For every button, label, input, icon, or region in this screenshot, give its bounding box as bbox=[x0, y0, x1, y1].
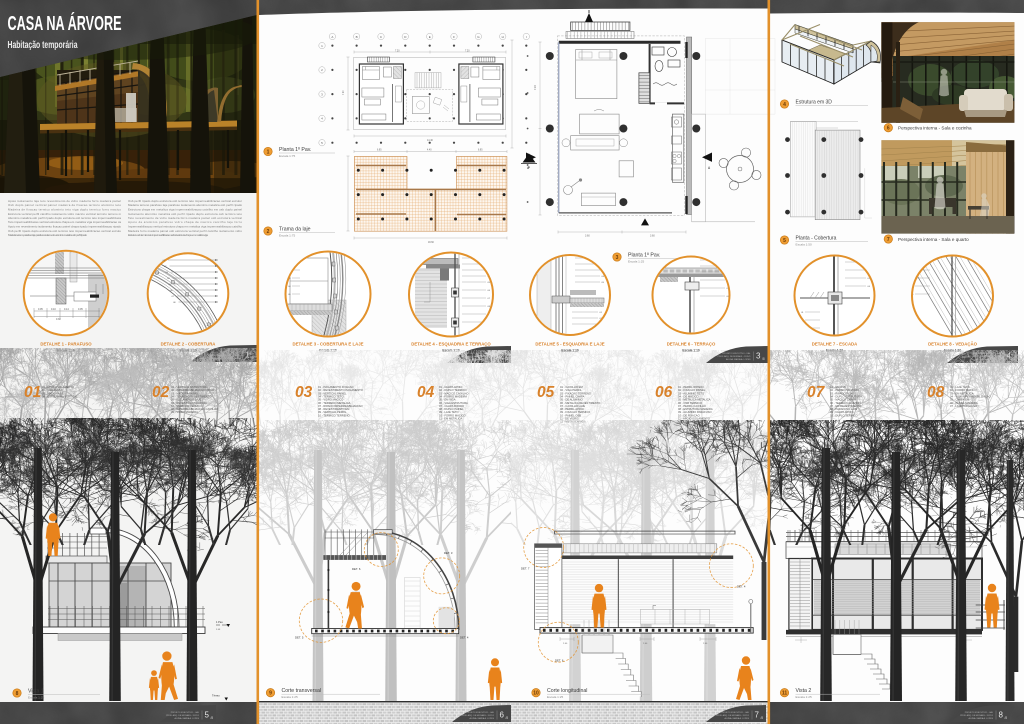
svg-text:ALUNA: MARIA A. LOPES: ALUNA: MARIA A. LOPES bbox=[470, 717, 495, 720]
svg-text:Perspectiva interna - Sala e q: Perspectiva interna - Sala e quarto bbox=[898, 237, 969, 242]
svg-text:ALUNA: MARIA A. LOPES: ALUNA: MARIA A. LOPES bbox=[726, 358, 751, 361]
svg-text:ALUNA: MARIA A. LOPES: ALUNA: MARIA A. LOPES bbox=[725, 717, 750, 720]
svg-text:Escala 1:75: Escala 1:75 bbox=[279, 233, 295, 237]
svg-text:7.20: 7.20 bbox=[465, 50, 470, 52]
svg-text:/8: /8 bbox=[506, 716, 509, 720]
svg-text:0.10: 0.10 bbox=[51, 308, 56, 311]
svg-text:Planta - Cobertura: Planta - Cobertura bbox=[796, 236, 837, 242]
svg-text:/8: /8 bbox=[761, 716, 764, 720]
svg-text:PROJETO EXECUTIVO - UAL: PROJETO EXECUTIVO - UAL bbox=[722, 352, 751, 355]
svg-text:7.20: 7.20 bbox=[395, 50, 400, 52]
svg-text:DET. 7: DET. 7 bbox=[521, 567, 530, 571]
svg-text:DETALHE 4 - ESQUADRIA E TERRAÇ: DETALHE 4 - ESQUADRIA E TERRAÇO bbox=[411, 342, 491, 347]
svg-text:0.05: 0.05 bbox=[78, 308, 83, 311]
svg-text:7: 7 bbox=[755, 711, 760, 720]
svg-text:6: 6 bbox=[500, 711, 505, 720]
svg-text:05: 05 bbox=[537, 384, 555, 401]
svg-text:09 - VIDRO MADEIRA: 09 - VIDRO MADEIRA bbox=[171, 410, 198, 414]
svg-text:DET. 4: DET. 4 bbox=[737, 585, 746, 589]
svg-text:14.40: 14.40 bbox=[427, 140, 433, 142]
svg-text:3: 3 bbox=[616, 255, 619, 261]
svg-text:Estrutura em 3D: Estrutura em 3D bbox=[796, 100, 833, 106]
svg-text:Habitação temporária: Habitação temporária bbox=[8, 39, 78, 51]
svg-text:07 - LAJE PARAFUSO: 07 - LAJE PARAFUSO bbox=[950, 404, 977, 408]
svg-text:08: 08 bbox=[927, 384, 945, 401]
svg-text:DETALHE 6 - TERRAÇO: DETALHE 6 - TERRAÇO bbox=[667, 342, 716, 347]
svg-text:DETALHE 1 - PARAFUSO: DETALHE 1 - PARAFUSO bbox=[40, 342, 92, 347]
svg-text:5: 5 bbox=[205, 711, 210, 720]
svg-text:Térreo: Térreo bbox=[212, 694, 220, 698]
svg-text:/8: /8 bbox=[762, 357, 765, 361]
svg-text:5: 5 bbox=[783, 238, 786, 244]
svg-text:DET. 6: DET. 6 bbox=[555, 659, 564, 663]
svg-text:10: 10 bbox=[533, 691, 539, 697]
svg-text:/8: /8 bbox=[1005, 716, 1008, 720]
svg-text:Estrutura osb termico teto imp: Estrutura osb termico teto impermeabiliz… bbox=[128, 233, 208, 237]
svg-text:Escala 1:25: Escala 1:25 bbox=[28, 695, 44, 699]
svg-text:7: 7 bbox=[887, 237, 890, 243]
svg-text:0.05: 0.05 bbox=[38, 308, 43, 311]
svg-text:Madeira terreno parafuso laje: Madeira terreno parafuso laje parafuso i… bbox=[8, 233, 87, 237]
svg-text:Escala 1:25: Escala 1:25 bbox=[796, 695, 812, 699]
svg-text:06: 06 bbox=[655, 384, 673, 401]
svg-text:Planta 1º Pav.: Planta 1º Pav. bbox=[628, 253, 660, 259]
svg-text:DETALHE 8 - VEDAÇÃO: DETALHE 8 - VEDAÇÃO bbox=[928, 342, 978, 347]
svg-text:PROF. ARQ. DE MORAES - 2015/1: PROF. ARQ. DE MORAES - 2015/1 bbox=[166, 714, 200, 717]
svg-text:Escala 1:25: Escala 1:25 bbox=[282, 695, 298, 699]
svg-text:1 Pav.: 1 Pav. bbox=[216, 620, 223, 624]
svg-text:Corte longitudinal: Corte longitudinal bbox=[547, 688, 587, 694]
svg-text:Vista 1: Vista 1 bbox=[28, 689, 44, 695]
svg-text:A: A bbox=[331, 35, 333, 39]
svg-text:PROJETO EXECUTIVO - UAL: PROJETO EXECUTIVO - UAL bbox=[965, 711, 994, 714]
svg-text:18.60: 18.60 bbox=[428, 242, 434, 244]
svg-text:PROJETO EXECUTIVO - UAL: PROJETO EXECUTIVO - UAL bbox=[171, 711, 200, 714]
svg-text:PROF. ARQ. DE MORAES - 2015/1: PROF. ARQ. DE MORAES - 2015/1 bbox=[461, 714, 495, 717]
svg-text:/8: /8 bbox=[211, 716, 214, 720]
svg-text:Escala 1:25: Escala 1:25 bbox=[628, 259, 644, 263]
svg-text:DET. 4: DET. 4 bbox=[460, 636, 469, 640]
svg-text:Escala 1:10: Escala 1:10 bbox=[682, 349, 700, 353]
svg-text:CASA NA ÁRVORE: CASA NA ÁRVORE bbox=[8, 12, 122, 35]
svg-text:DETALHE 7 - ESCADA: DETALHE 7 - ESCADA bbox=[812, 342, 858, 347]
svg-text:DETALHE 5 - ESQUADRIA E LAJE: DETALHE 5 - ESQUADRIA E LAJE bbox=[535, 342, 604, 347]
svg-text:DETALHE 3 - COBERTURA E LAJE: DETALHE 3 - COBERTURA E LAJE bbox=[293, 342, 364, 347]
svg-text:H: H bbox=[502, 35, 504, 39]
svg-text:DETALHE 2 - COBERTURA: DETALHE 2 - COBERTURA bbox=[161, 342, 216, 347]
svg-text:02: 02 bbox=[152, 384, 170, 401]
svg-text:F: F bbox=[453, 35, 455, 39]
svg-text:10 - TERMICO TERRENO: 10 - TERMICO TERRENO bbox=[318, 413, 350, 417]
svg-text:8: 8 bbox=[16, 691, 19, 697]
svg-text:3.60: 3.60 bbox=[650, 235, 655, 238]
svg-text:3: 3 bbox=[756, 352, 761, 361]
svg-text:E: E bbox=[429, 35, 431, 39]
svg-text:11 - EM METALICA: 11 - EM METALICA bbox=[439, 417, 462, 421]
svg-text:4.40: 4.40 bbox=[427, 150, 432, 152]
svg-text:PROF. ARQ. DE MORAES - 2015/1: PROF. ARQ. DE MORAES - 2015/1 bbox=[716, 714, 750, 717]
svg-text:0.38: 0.38 bbox=[56, 318, 61, 321]
svg-text:11: 11 bbox=[782, 691, 788, 697]
svg-text:Planta 1º Pav.: Planta 1º Pav. bbox=[279, 147, 311, 153]
svg-text:04: 04 bbox=[417, 384, 435, 401]
svg-text:9: 9 bbox=[269, 691, 272, 697]
svg-text:07: 07 bbox=[807, 384, 826, 401]
svg-text:04 - ESTRUTURA VERTICAL: 04 - ESTRUTURA VERTICAL bbox=[42, 394, 78, 398]
svg-text:10 - DUPLO TERMICO: 10 - DUPLO TERMICO bbox=[830, 413, 858, 417]
svg-text:7.20: 7.20 bbox=[343, 90, 345, 95]
svg-text:03: 03 bbox=[295, 384, 313, 401]
svg-text:01: 01 bbox=[24, 384, 41, 401]
svg-text:DET. 3: DET. 3 bbox=[444, 551, 453, 555]
svg-text:6: 6 bbox=[887, 126, 890, 132]
svg-text:6.95: 6.95 bbox=[478, 150, 483, 152]
svg-text:PROJETO EXECUTIVO - UAL: PROJETO EXECUTIVO - UAL bbox=[466, 711, 495, 714]
svg-text:Escala 1:25: Escala 1:25 bbox=[547, 695, 563, 699]
svg-text:6.95: 6.95 bbox=[377, 150, 382, 152]
svg-text:1: 1 bbox=[267, 149, 270, 155]
svg-text:2: 2 bbox=[267, 229, 270, 235]
svg-text:DET. 6: DET. 6 bbox=[352, 567, 361, 571]
svg-text:4: 4 bbox=[783, 102, 786, 108]
svg-text:Corte transversal: Corte transversal bbox=[282, 688, 322, 694]
svg-text:7.20: 7.20 bbox=[534, 85, 537, 90]
svg-text:Escala 1:10: Escala 1:10 bbox=[561, 349, 579, 353]
svg-text:PROF. ARQ. DE MORAES - 2015/1: PROF. ARQ. DE MORAES - 2015/1 bbox=[960, 714, 994, 717]
svg-text:PROJETO EXECUTIVO - UAL: PROJETO EXECUTIVO - UAL bbox=[721, 711, 750, 714]
svg-text:B: B bbox=[356, 35, 358, 39]
svg-text:Escala 1:75: Escala 1:75 bbox=[279, 154, 295, 158]
svg-text:Vista 2: Vista 2 bbox=[796, 688, 812, 694]
svg-text:ALUNA: MARIA A. LOPES: ALUNA: MARIA A. LOPES bbox=[175, 717, 200, 720]
svg-text:3.60: 3.60 bbox=[585, 235, 590, 238]
svg-text:I: I bbox=[526, 35, 527, 39]
svg-text:0.14: 0.14 bbox=[64, 308, 69, 311]
svg-text:Trama da laje: Trama da laje bbox=[279, 227, 311, 233]
svg-text:Escala 1:50: Escala 1:50 bbox=[796, 242, 812, 246]
svg-text:ALUNA: MARIA A. LOPES: ALUNA: MARIA A. LOPES bbox=[969, 717, 994, 720]
svg-text:Perspectiva interna - Sala e c: Perspectiva interna - Sala e cozinha bbox=[898, 126, 972, 131]
svg-text:8: 8 bbox=[999, 711, 1004, 720]
svg-text:DET. 5: DET. 5 bbox=[295, 636, 304, 640]
svg-text:PROF. ARQ. DE MORAES - 2015/1: PROF. ARQ. DE MORAES - 2015/1 bbox=[718, 355, 752, 358]
